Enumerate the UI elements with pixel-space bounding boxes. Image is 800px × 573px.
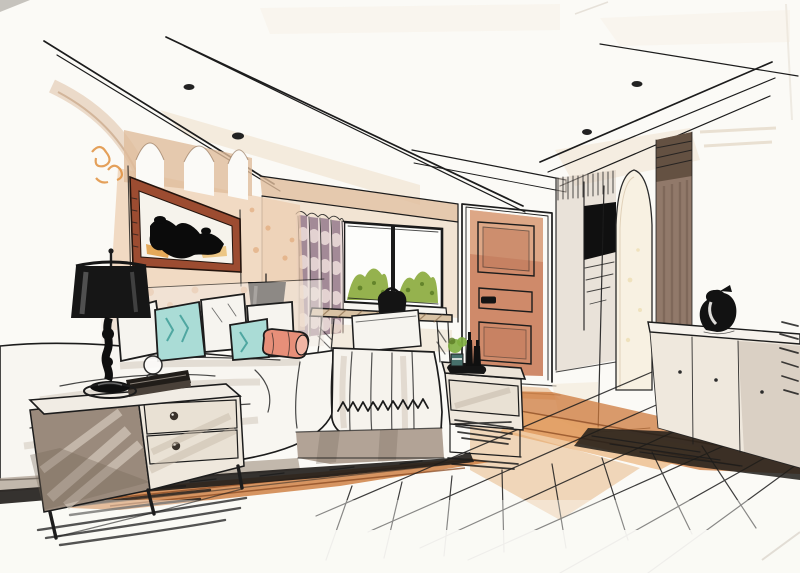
bedroom-sketch: bedroom interior sketch in two-point per… [0,0,800,573]
spotlight [632,81,643,87]
door-handle [481,297,496,304]
spotlight [184,84,195,90]
lamp-stem [106,318,109,380]
pilaster-column [656,132,692,336]
arched-alcove [616,170,652,390]
drawer-knob [170,412,178,420]
plant-pot [451,354,463,366]
spotlight [232,133,244,140]
media-wardrobe [556,170,616,372]
spotlight [582,129,592,135]
sketch-canvas [0,0,800,573]
pillow-aqua [155,302,205,361]
media-panel [584,202,616,260]
